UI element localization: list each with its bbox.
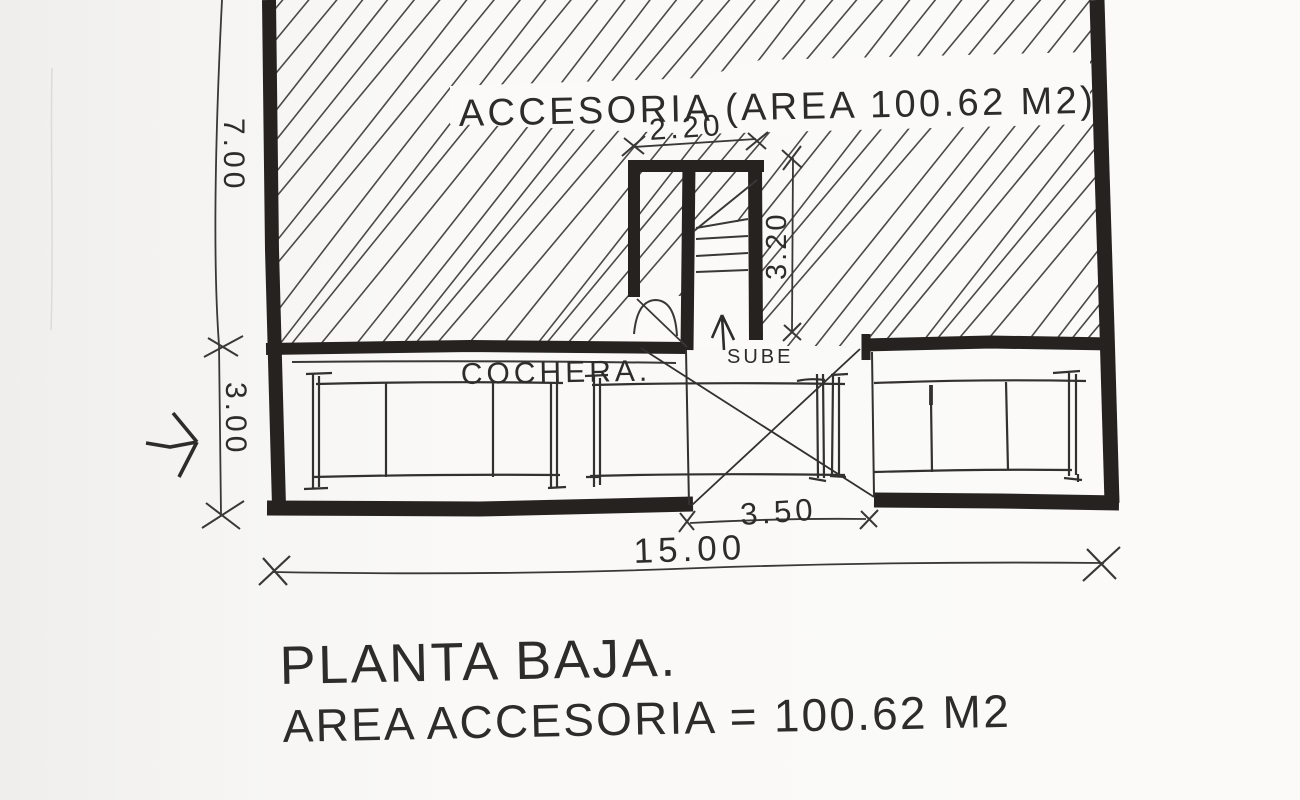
- svg-text:PLANTA BAJA.: PLANTA BAJA.: [279, 628, 678, 696]
- svg-text:COCHERA.: COCHERA.: [461, 355, 652, 391]
- svg-text:15.00: 15.00: [633, 528, 747, 571]
- svg-text:7.00: 7.00: [217, 118, 250, 192]
- svg-text:3.00: 3.00: [219, 382, 252, 456]
- svg-text:3.20: 3.20: [761, 212, 793, 280]
- svg-text:SUBE: SUBE: [727, 346, 793, 368]
- svg-text:3.50: 3.50: [739, 492, 818, 532]
